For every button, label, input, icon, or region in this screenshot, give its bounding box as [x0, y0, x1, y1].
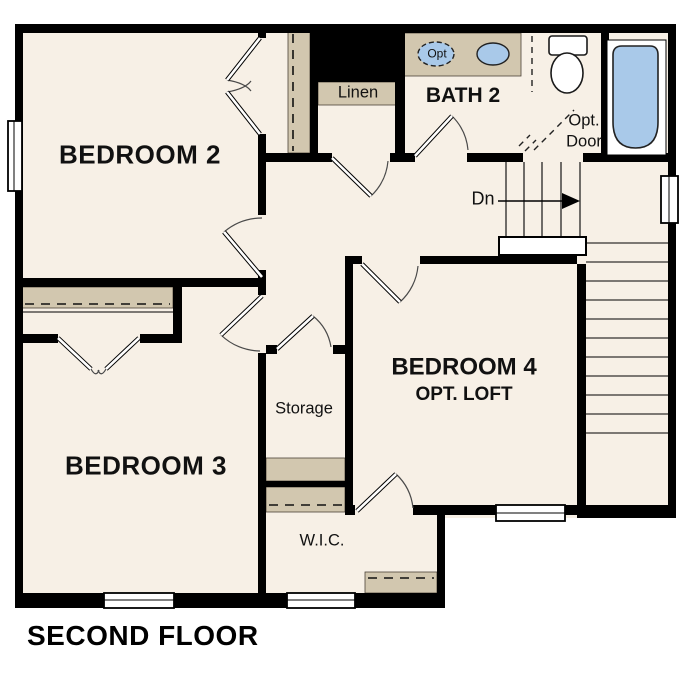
page-title: SECOND FLOOR — [27, 620, 259, 652]
label-wic: W.I.C. — [300, 532, 345, 549]
floor-plan-drawing — [0, 0, 687, 687]
label-stairs-down: Dn — [471, 190, 494, 209]
floor-plan: BEDROOM 2 Linen BATH 2 Opt. Door Dn Opt … — [0, 0, 687, 687]
window-bedroom3-bottom — [104, 593, 174, 608]
label-storage: Storage — [275, 400, 333, 417]
label-opt-door-1: Opt. — [568, 112, 599, 129]
sink — [477, 43, 509, 65]
window-wic-bottom — [287, 593, 355, 608]
label-bedroom4: BEDROOM 4 — [391, 354, 536, 379]
label-bedroom2: BEDROOM 2 — [59, 141, 221, 168]
stair-landing — [499, 237, 586, 255]
window-stair-right — [661, 176, 678, 223]
label-opt-sink: Opt — [427, 48, 446, 61]
tub — [607, 40, 666, 155]
label-opt-door-2: Door — [566, 133, 602, 150]
label-bedroom4-sub: OPT. LOFT — [415, 385, 512, 405]
label-bedroom3: BEDROOM 3 — [65, 452, 227, 479]
window-bedroom2-left — [8, 121, 22, 191]
label-bath2: BATH 2 — [426, 85, 500, 107]
label-linen: Linen — [338, 84, 378, 101]
window-bedroom4-bottom — [496, 505, 565, 521]
